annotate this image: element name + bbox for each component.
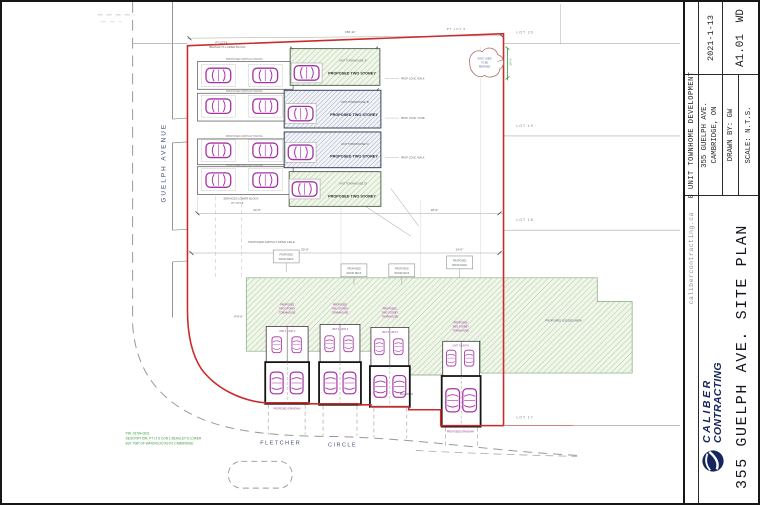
svg-text:TOWNHOUSE: TOWNHOUSE	[332, 312, 349, 315]
car-icon	[394, 339, 403, 355]
building-label: PROPOSED TWO STOREY	[330, 155, 378, 159]
asphalt-label: PROPOSED ASPHALT PAVING	[226, 57, 263, 61]
lot-label: LOT 19	[516, 124, 533, 128]
svg-text:WOOD DECK: WOOD DECK	[394, 272, 409, 275]
car-icon	[270, 372, 283, 394]
revision-cloud: EXIST. SHED TO BE REMOVED	[470, 48, 504, 77]
title-block-main: calibercontracting.ca CALIBER CONTRACTIN…	[685, 195, 758, 503]
svg-text:WOOD DECK: WOOD DECK	[279, 258, 294, 261]
street-label-circle: CIRCLE	[328, 442, 357, 448]
car-icon	[292, 182, 317, 196]
legal-notes: PIN: 03784-0021 DESCRIPTION: PT LT 8 CON…	[126, 432, 202, 446]
car-icon	[253, 173, 278, 187]
dim-text: 24'-0"	[253, 208, 261, 212]
ann-label: PROP. CONC. CURB	[401, 117, 425, 120]
svg-text:PROPOSED: PROPOSED	[454, 321, 468, 324]
car-icon	[374, 376, 387, 398]
svg-text:TOWNHOUSE: TOWNHOUSE	[279, 312, 296, 315]
svg-text:PROPOSED: PROPOSED	[383, 308, 397, 311]
car-icon	[288, 106, 313, 120]
note-line: BLK TWP OF WATERLOO AS IN; CAMBRIDGE	[126, 441, 194, 445]
car-icon	[446, 350, 455, 366]
dim-text: 20'-0"	[301, 248, 309, 252]
car-icon	[206, 99, 231, 113]
svg-text:PROPOSED: PROPOSED	[279, 253, 293, 256]
svg-text:WOOD DECK: WOOD DECK	[452, 264, 467, 267]
parcel-label: PT LOT 8	[231, 201, 243, 205]
building-label: PROPOSED TWO STOREY	[330, 113, 378, 117]
side-annotations: PROP. CONC. WALK PROP. CONC. CURB PROP. …	[385, 77, 425, 159]
sheet-title: 355 GUELPH AVE. SITE PLAN	[726, 196, 758, 503]
unit-numbers: UNIT 7 | UNIT 8	[453, 346, 470, 348]
green-dimension: 29'-6"	[506, 47, 513, 81]
block-label: BLOCK 10	[400, 392, 414, 396]
dim-text: 150'-11"	[345, 30, 356, 34]
unit-label: UNIT TOWNHOUSE 'C'	[341, 142, 370, 146]
unit-numbers: UNIT 5 | UNIT 6	[382, 332, 399, 334]
car-icon	[272, 337, 281, 353]
svg-text:REMOVED: REMOVED	[479, 66, 491, 68]
building-label: PROPOSED TWO STOREY	[328, 71, 376, 75]
lot-label-top: PT LOT 9	[447, 27, 466, 31]
scale-note: SCALE: N.T.S.	[739, 75, 758, 195]
dim-text: 29'-6"	[508, 58, 512, 66]
street-label-fletcher: FLETCHER	[260, 440, 301, 446]
sheet-number: A1.01 WD	[723, 2, 758, 74]
dim-text: 18'-0"	[431, 208, 439, 212]
svg-text:TO BE: TO BE	[481, 63, 488, 65]
car-icon	[292, 337, 301, 353]
lot-label: LOT 20	[516, 31, 533, 35]
aisle-label: PROPOSED ASPHALT DRIVE AISLE	[248, 240, 295, 244]
driveway-label: PROPOSED DRIVEWAY	[447, 431, 475, 434]
car-icon	[294, 66, 319, 80]
project-type: 8 UNIT TOWNHOME DEVELOPMENT	[685, 75, 699, 195]
car-icon	[253, 143, 278, 157]
car-icon	[344, 336, 353, 352]
svg-text:WOOD DECK: WOOD DECK	[346, 272, 361, 275]
car-icon	[206, 173, 231, 187]
title-block: calibercontracting.ca CALIBER CONTRACTIN…	[683, 2, 758, 503]
driveway-label: PROPOSED DRIVEWAY	[273, 408, 301, 411]
title-block-sheet: 2021-1-13 A1.01 WD	[685, 2, 758, 74]
svg-text:TWO STOREY: TWO STOREY	[382, 312, 399, 315]
ann-label: PROP. CONC. WALK	[401, 77, 425, 80]
logo-contracting: CONTRACTING	[713, 362, 724, 443]
car-icon	[375, 339, 384, 355]
sheet-date: 2021-1-13	[699, 2, 723, 74]
site-plan-svg: LOT 20 LOT 19 LOT 18 LOT 17 PT LOT 9	[2, 2, 683, 503]
unit-numbers: UNIT 1 | UNIT 2	[279, 331, 296, 333]
lot-label: LOT 17	[516, 416, 533, 420]
unit-label: UNIT TOWNHOUSE 'A'	[339, 59, 368, 63]
note-line: DESCRIPTION: PT LT 8 CON 1 BEASLEY'S LOW…	[126, 437, 202, 441]
parking-area: PROPOSED ASPHALT PAVING PROPOSED ASPHALT…	[197, 41, 293, 205]
beasley-label: BEASLEY'S LOWER BLOCK	[209, 45, 245, 49]
asphalt-label: PROPOSED ASPHALT PAVING	[226, 163, 263, 167]
unit-label: UNIT TOWNHOUSE 'B'	[341, 100, 370, 104]
svg-text:PROPOSED: PROPOSED	[347, 267, 361, 270]
unit-numbers: UNIT 3 | UNIT 4	[332, 329, 349, 331]
svg-text:TWO STOREY: TWO STOREY	[279, 308, 296, 311]
website-label: calibercontracting.ca	[688, 212, 695, 304]
car-icon	[343, 372, 356, 394]
car-icon	[324, 372, 337, 394]
svg-text:EXIST. SHED: EXIST. SHED	[478, 59, 492, 61]
svg-text:TWO STOREY: TWO STOREY	[452, 325, 469, 328]
car-icon	[463, 389, 477, 412]
svg-text:PROPOSED: PROPOSED	[453, 259, 467, 262]
logo-caliber: CALIBER	[702, 362, 713, 443]
title-block-info: 8 UNIT TOWNHOME DEVELOPMENT 355 GUELPH A…	[685, 74, 758, 195]
ann-label: PROP. CONC. WALK	[401, 157, 425, 160]
building-label: PROPOSED TWO STOREY	[328, 194, 376, 198]
car-icon	[325, 336, 334, 352]
svg-text:PROPOSED: PROPOSED	[395, 267, 409, 270]
dim-text: R 9'-0"	[234, 314, 243, 318]
car-icon	[288, 145, 313, 159]
caliber-logo: CALIBER CONTRACTING	[699, 196, 726, 503]
asphalt-label: PROPOSED ASPHALT PAVING	[226, 134, 263, 138]
project-address: 355 GUELPH AVE. CAMBRIDGE, ON	[699, 75, 723, 195]
site-plan-sheet: LOT 20 LOT 19 LOT 18 LOT 17 PT LOT 9	[0, 0, 760, 505]
svg-text:PROPOSED: PROPOSED	[280, 304, 294, 307]
car-icon	[206, 68, 231, 82]
svg-text:PROPOSED: PROPOSED	[333, 304, 347, 307]
drawn-by: DRAWN BY: GW	[723, 75, 739, 195]
caliber-logo-icon	[701, 449, 725, 473]
car-icon	[253, 68, 278, 82]
car-icon	[290, 372, 303, 394]
svg-text:TWO STOREY: TWO STOREY	[332, 308, 349, 311]
grass-label: PROPOSED SODDED AREA	[545, 318, 582, 322]
unit-label: UNIT TOWNHOUSE 'D'	[339, 182, 368, 186]
drawing-area: LOT 20 LOT 19 LOT 18 LOT 17 PT LOT 9	[2, 2, 683, 503]
car-icon	[446, 389, 460, 412]
traffic-island	[228, 461, 292, 488]
svg-text:TOWNHOUSE: TOWNHOUSE	[382, 315, 399, 318]
note-line: PIN: 03784-0021	[126, 432, 150, 436]
street-label-guelph: GUELPH AVENUE	[161, 123, 168, 203]
car-icon	[464, 350, 473, 366]
svg-text:TOWNHOUSE: TOWNHOUSE	[452, 329, 469, 332]
dim-text: 24'-0"	[456, 248, 464, 252]
lot-label: LOT 18	[516, 218, 533, 222]
services-label: SERVICES LOWER BLOCK	[223, 196, 258, 200]
central-buildings: UNIT TOWNHOUSE 'A' PROPOSED TWO STOREY U…	[284, 49, 425, 207]
car-icon	[253, 99, 278, 113]
asphalt-label: PROPOSED ASPHALT PAVING	[226, 89, 263, 93]
car-icon	[206, 143, 231, 157]
